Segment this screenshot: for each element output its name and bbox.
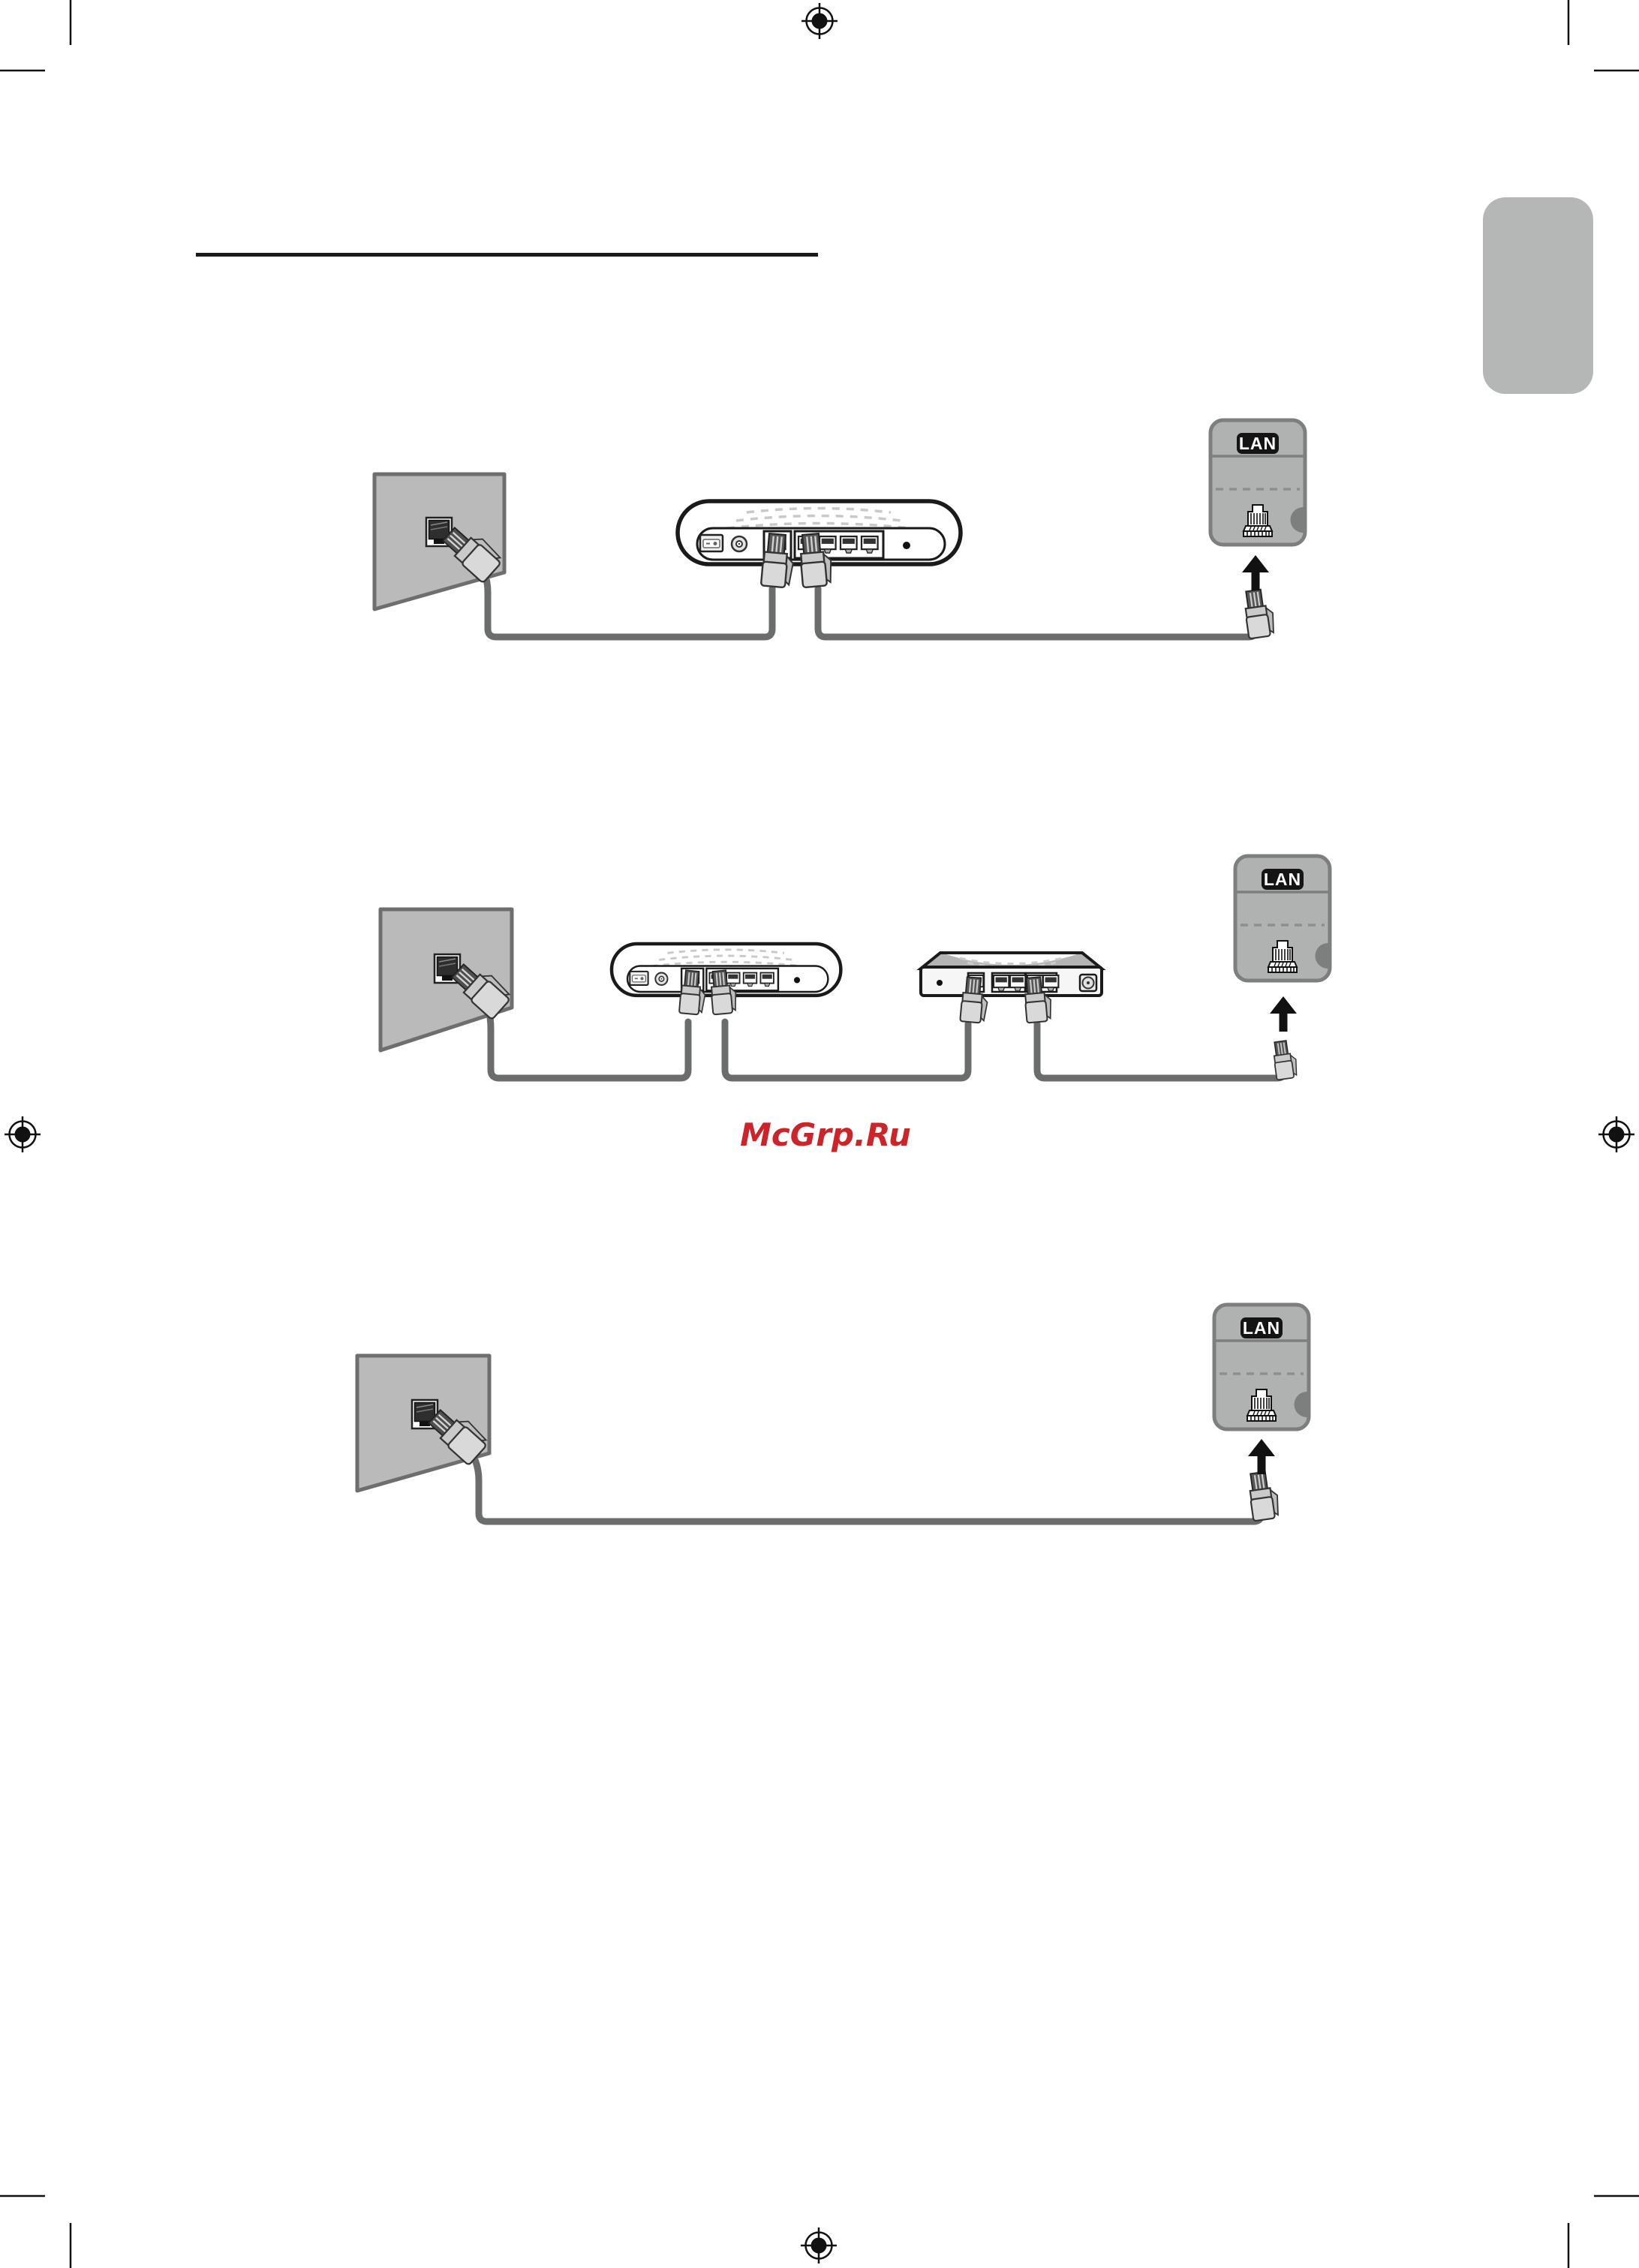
ethernet-cable-router-to-tv <box>1037 1024 1285 1078</box>
registration-mark-bottom <box>801 2227 837 2263</box>
ethernet-cable-modem-to-tv <box>818 589 1256 637</box>
arrow-up-icon <box>1248 1439 1275 1474</box>
arrow-up-icon <box>1242 555 1269 590</box>
router-icon <box>921 953 1102 1023</box>
ethernet-cable-wall-to-tv <box>459 1440 1262 1522</box>
tv-lan-port-panel: LAN <box>1214 1305 1309 1429</box>
manual-page: LAN LAN McGrp.Ru LAN <box>0 0 1639 2268</box>
diagram-modem-router-connection: LAN <box>380 856 1330 1080</box>
lan-port-label: LAN <box>1239 434 1277 453</box>
ethernet-cable-wall-to-modem <box>471 558 772 637</box>
registration-mark-right <box>1598 1116 1634 1152</box>
rj45-connector-icon <box>1272 1040 1299 1080</box>
ethernet-cables <box>480 994 1285 1078</box>
arrow-up-icon <box>1270 996 1297 1032</box>
ethernet-cable-modem-to-router <box>725 1022 968 1078</box>
lan-port-label: LAN <box>1243 1318 1280 1338</box>
watermark-text: McGrp.Ru <box>740 1116 911 1153</box>
diagram-direct-connection: LAN <box>357 1305 1309 1522</box>
tv-lan-port-panel: LAN <box>1235 856 1330 981</box>
modem-icon <box>678 501 961 588</box>
registration-mark-left <box>5 1116 41 1152</box>
diagram-modem-connection: LAN <box>374 420 1305 638</box>
ethernet-cables <box>471 558 1256 637</box>
modem-icon <box>612 944 841 1015</box>
chapter-side-tab <box>1483 197 1593 394</box>
rj45-connector-icon <box>1247 1470 1280 1521</box>
rj45-connector-icon <box>1243 588 1276 638</box>
heading-rule <box>196 253 818 257</box>
registration-mark-top <box>801 3 838 39</box>
tv-lan-port-panel: LAN <box>1210 420 1305 545</box>
lan-port-label: LAN <box>1264 870 1301 889</box>
